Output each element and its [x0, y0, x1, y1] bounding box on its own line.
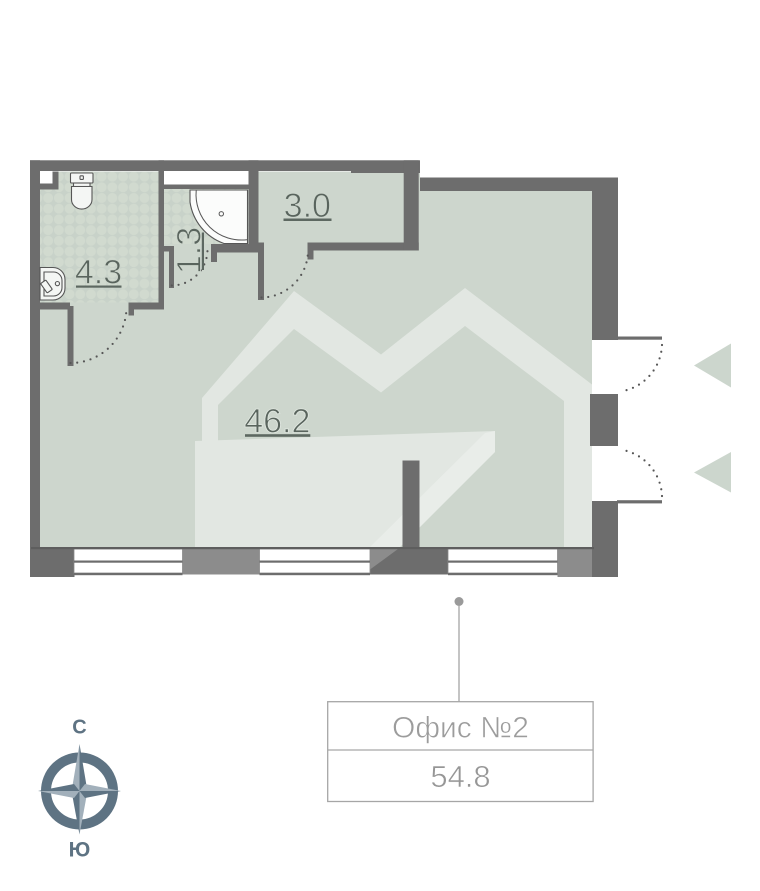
svg-text:Офис №2: Офис №2: [392, 712, 529, 745]
svg-text:С: С: [72, 717, 86, 739]
svg-text:54.8: 54.8: [430, 759, 490, 794]
svg-text:Ю: Ю: [69, 839, 91, 862]
